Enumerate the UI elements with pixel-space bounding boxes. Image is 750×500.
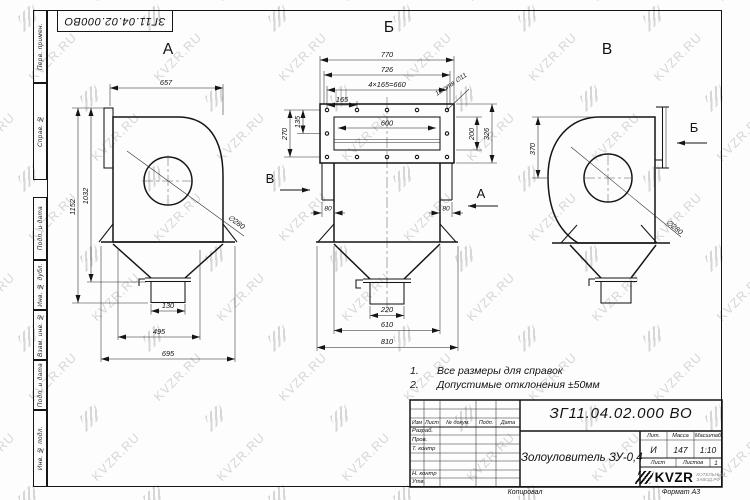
side-stamp-label: Взам. инв. № <box>37 313 44 357</box>
watermark-text: KVZR.RU <box>89 0 143 4</box>
top-stamp-doc-number: ЗГ11.04.02.000ВО <box>64 15 165 27</box>
side-stamp-sprav-no: Справ. № <box>33 83 47 180</box>
side-stamp-inv-dubl: Инв. № дубл. <box>33 260 47 310</box>
side-stamp-label: Подп. и дата <box>37 206 44 250</box>
top-stamp-box: ЗГ11.04.02.000ВО <box>57 10 173 32</box>
note-2-text: Допустимые отклонения ±50мм <box>437 379 600 391</box>
kvzr-logo: KVZR КОТЕЛЬНЫЙ ЗАВОД.РФ <box>641 468 721 486</box>
watermark-text: KVZR.RU <box>714 0 750 4</box>
tb-header-izm: Изм <box>410 420 424 426</box>
tb-scale-value: 1:10 <box>694 445 722 455</box>
watermark-text: KVZR.RU <box>339 0 393 4</box>
tb-lit-label: Лит. <box>640 433 667 439</box>
tb-row-approved: Утв. <box>412 479 425 485</box>
side-stamp-label: Подп. и дата <box>37 363 44 407</box>
format-label: Формат А3 <box>640 489 722 496</box>
note-2-number: 2. <box>410 379 419 391</box>
tb-header-date: Дата <box>496 420 520 426</box>
side-stamp-podp-data-1: Подп. и дата <box>33 197 47 260</box>
tb-mass-label: Масса <box>667 433 694 439</box>
watermark-text: KVZR.RU <box>214 0 268 4</box>
tb-sheets-value: 1 <box>710 460 722 467</box>
side-stamp-vzam-inv: Взам. инв. № <box>33 310 47 360</box>
watermark-text: KVZR.RU <box>0 0 18 4</box>
tb-row-tcontrol: Т. контр <box>412 446 435 452</box>
drawing-sheet: KVZR.RUKVZR.RUKVZR.RUKVZR.RUKVZR.RUKVZR.… <box>0 0 750 500</box>
title-product-name: Золоуловитель ЗУ-0,4 <box>521 452 639 464</box>
note-1-text: Все размеры для справок <box>437 365 563 377</box>
side-stamp-label: Справ. № <box>37 115 44 147</box>
note-1-number: 1. <box>410 365 419 377</box>
watermark-text: KVZR.RU <box>0 110 18 164</box>
title-doc-number: ЗГ11.04.02.000 ВО <box>520 405 722 422</box>
kvzr-logo-text: KVZR <box>655 470 694 485</box>
kvzr-logo-subtext: КОТЕЛЬНЫЙ ЗАВОД.РФ <box>696 472 725 482</box>
tb-mass-value: 147 <box>667 445 694 455</box>
side-stamp-label: Перв. примен. <box>37 23 44 70</box>
side-stamp-label: Инв. № дубл. <box>37 263 44 307</box>
tb-sheets-label: Листов <box>676 460 710 466</box>
tb-row-developed: Разраб. <box>412 428 433 434</box>
side-stamp-label: Инв. № подл. <box>37 426 44 470</box>
tb-row-checked: Пров. <box>412 437 427 443</box>
tb-lit-value: И <box>640 445 667 455</box>
watermark-text: KVZR.RU <box>589 0 643 4</box>
tb-sheet-label: Лист <box>640 460 676 466</box>
side-stamp-perv-primen: Перв. примен. <box>33 10 47 83</box>
tb-scale-label: Масштаб <box>694 433 722 439</box>
copied-label: Копировал <box>470 489 580 496</box>
watermark-text: KVZR.RU <box>0 270 18 324</box>
tb-header-doc: № докум. <box>440 420 476 426</box>
tb-header-sign: Подп. <box>476 420 496 426</box>
watermark-text: KVZR.RU <box>464 0 518 4</box>
watermark-text: KVZR.RU <box>0 430 18 484</box>
tb-header-list: Лист <box>424 420 440 426</box>
kvzr-logo-icon <box>635 471 654 484</box>
side-stamp-podp-data-2: Подп. и дата <box>33 360 47 410</box>
tb-row-ncontrol: Н. контр <box>412 471 437 477</box>
side-stamp-inv-podl: Инв. № подл. <box>33 410 47 487</box>
